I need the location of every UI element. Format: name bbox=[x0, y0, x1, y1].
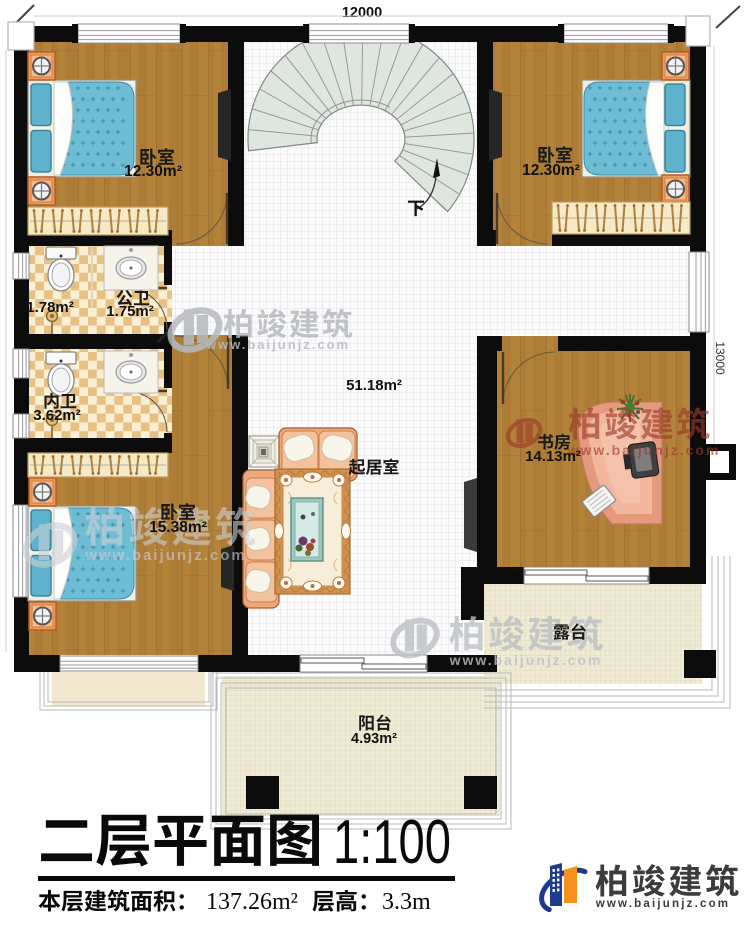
svg-text:www.baijunjz.com: www.baijunjz.com bbox=[449, 652, 603, 668]
svg-text:1.78m²: 1.78m² bbox=[26, 299, 74, 316]
svg-text:13000: 13000 bbox=[713, 341, 727, 375]
svg-text:51.18m²: 51.18m² bbox=[346, 377, 402, 394]
svg-text:www.baijunjz.com: www.baijunjz.com bbox=[84, 547, 246, 564]
svg-text:1.75m²: 1.75m² bbox=[106, 303, 154, 320]
svg-text:3.62m²: 3.62m² bbox=[33, 407, 81, 424]
svg-text:12.30m²: 12.30m² bbox=[124, 163, 182, 180]
svg-text:4.93m²: 4.93m² bbox=[351, 731, 397, 747]
svg-text:12.30m²: 12.30m² bbox=[522, 162, 580, 179]
svg-text:14.13m²: 14.13m² bbox=[525, 448, 581, 465]
svg-text:12000: 12000 bbox=[342, 5, 382, 21]
svg-text:3.3m: 3.3m bbox=[382, 889, 431, 915]
svg-text:15.38m²: 15.38m² bbox=[149, 519, 207, 536]
svg-text:www.baijunjz.com: www.baijunjz.com bbox=[567, 442, 721, 458]
svg-text:www.baijunjz.com: www.baijunjz.com bbox=[205, 337, 350, 352]
svg-text:137.26m²: 137.26m² bbox=[206, 889, 298, 915]
svg-text:www.baijunjz.com: www.baijunjz.com bbox=[595, 898, 730, 910]
svg-text:1:100: 1:100 bbox=[333, 808, 451, 877]
